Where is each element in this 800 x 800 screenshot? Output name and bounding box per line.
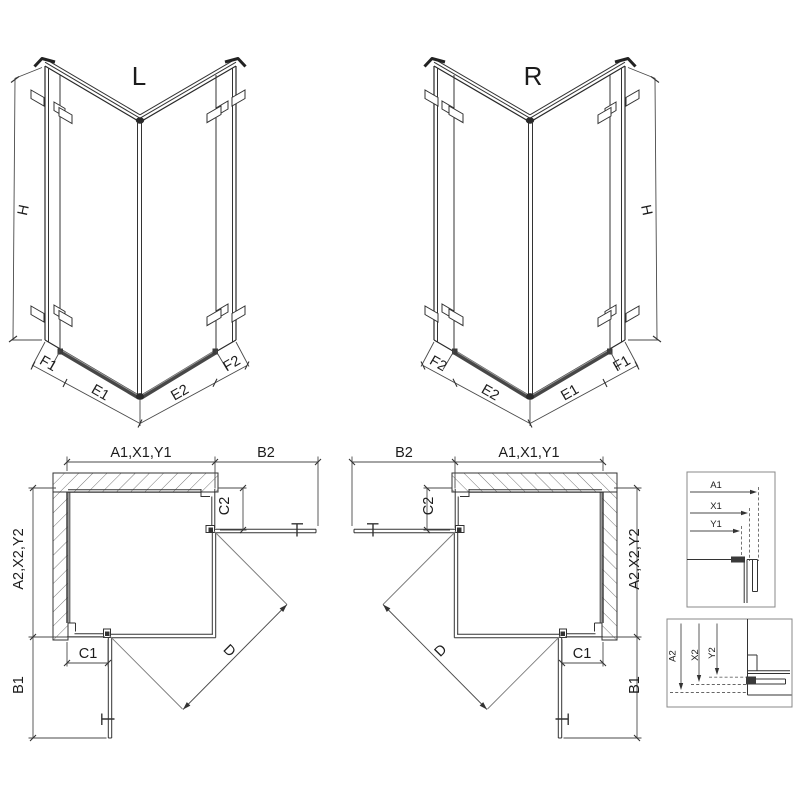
plan-view-left: A1,X1,Y1 B2 C2 A2,X2,Y2 C1 B1 D — [11, 445, 321, 741]
detail-box-vertical: A2 X2 Y2 — [667, 619, 792, 707]
plan-left-depth: A2,X2,Y2 — [11, 528, 27, 589]
technical-drawing: L H F1 E1 E2 F2 R H F2 E2 E1 F1 A1,X1,Y1… — [0, 0, 800, 800]
dim-label-f2-right: F2 — [427, 353, 450, 375]
dim-label-e2-right: E2 — [478, 382, 501, 405]
dim-label-e2-left: E2 — [168, 382, 191, 405]
iso-right-title: R — [524, 61, 543, 91]
detail-y2-label: Y2 — [707, 647, 718, 659]
shower-enclosure-spec-sheet: L H F1 E1 E2 F2 R H F2 E2 E1 F1 A1,X1,Y1… — [0, 0, 800, 800]
detail-y1-label: Y1 — [710, 519, 722, 530]
plan-left-door-bottom: B1 — [11, 676, 27, 694]
plan-right-diagonal: D — [432, 642, 451, 661]
plan-right-door-top: B2 — [395, 445, 413, 461]
detail-x1-label: X1 — [710, 501, 722, 512]
dim-label-f1-right: F1 — [611, 353, 634, 375]
plan-left-door-top: B2 — [257, 445, 275, 461]
plan-right-panel-bottom: C1 — [573, 646, 592, 662]
dim-label-e1-left: E1 — [88, 382, 111, 405]
plan-right-panel-top: C2 — [421, 497, 437, 516]
dim-label-h-right: H — [637, 203, 655, 217]
detail-a1-label: A1 — [710, 480, 722, 491]
detail-box-horizontal: A1 X1 Y1 — [687, 472, 775, 607]
iso-view-right: R H F2 E2 E1 F1 — [421, 59, 661, 428]
plan-left-width-top: A1,X1,Y1 — [110, 445, 171, 461]
plan-right-width-top: A1,X1,Y1 — [498, 445, 559, 461]
plan-left-diagonal: D — [220, 642, 239, 661]
iso-view-left: L H F1 E1 E2 F2 — [9, 59, 249, 428]
detail-a2-label: A2 — [668, 650, 679, 662]
dim-label-h-left: H — [15, 203, 33, 217]
plan-right-depth: A2,X2,Y2 — [627, 528, 643, 589]
dim-label-f2-left: F2 — [221, 353, 244, 375]
iso-left-title: L — [132, 61, 146, 91]
plan-left-panel-top: C2 — [217, 497, 233, 516]
plan-view-right: A1,X1,Y1 B2 C2 A2,X2,Y2 C1 B1 D — [349, 445, 643, 741]
plan-left-panel-bottom: C1 — [79, 646, 98, 662]
dim-label-e1-right: E1 — [558, 382, 581, 405]
plan-right-door-bottom: B1 — [627, 676, 643, 694]
dim-label-f1-left: F1 — [37, 353, 60, 375]
